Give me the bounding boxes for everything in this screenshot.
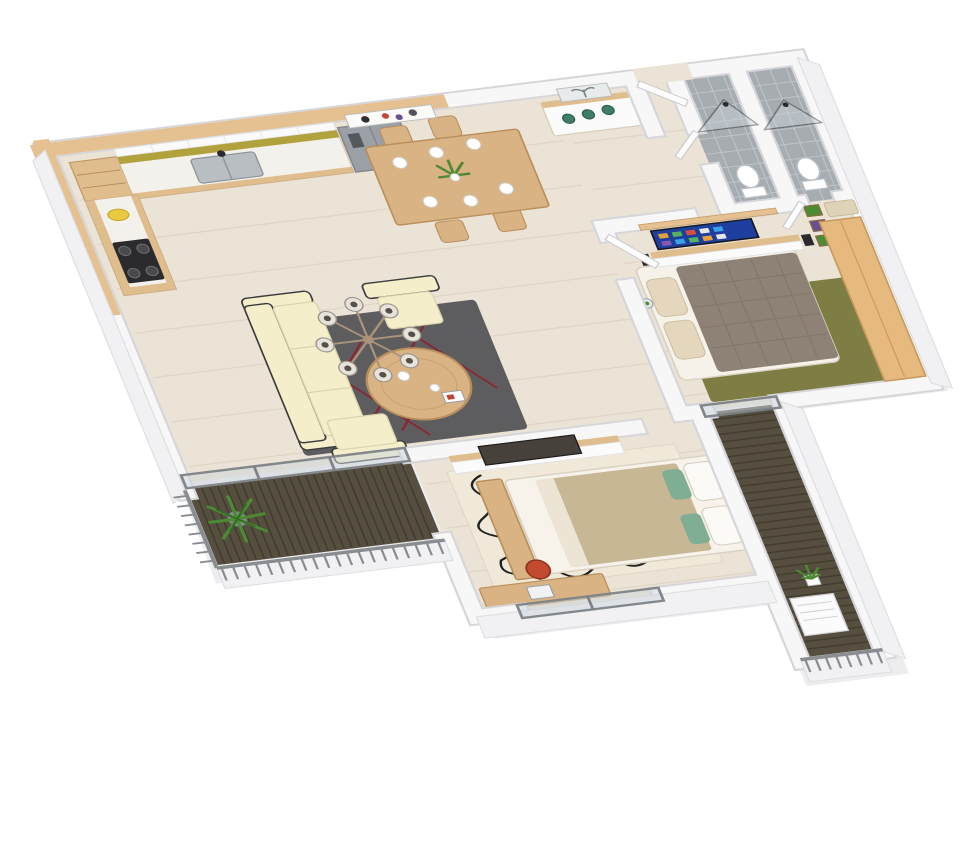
floorplan-stage [0, 0, 960, 848]
bath-mat [824, 199, 859, 217]
floorplan-render [0, 0, 960, 848]
entry-door-opening [636, 71, 691, 78]
laptop [526, 585, 554, 600]
framed-print [803, 205, 822, 217]
armchair2-seat [326, 413, 397, 450]
toilet2-tank [802, 179, 829, 191]
toilet1-tank [741, 186, 768, 198]
